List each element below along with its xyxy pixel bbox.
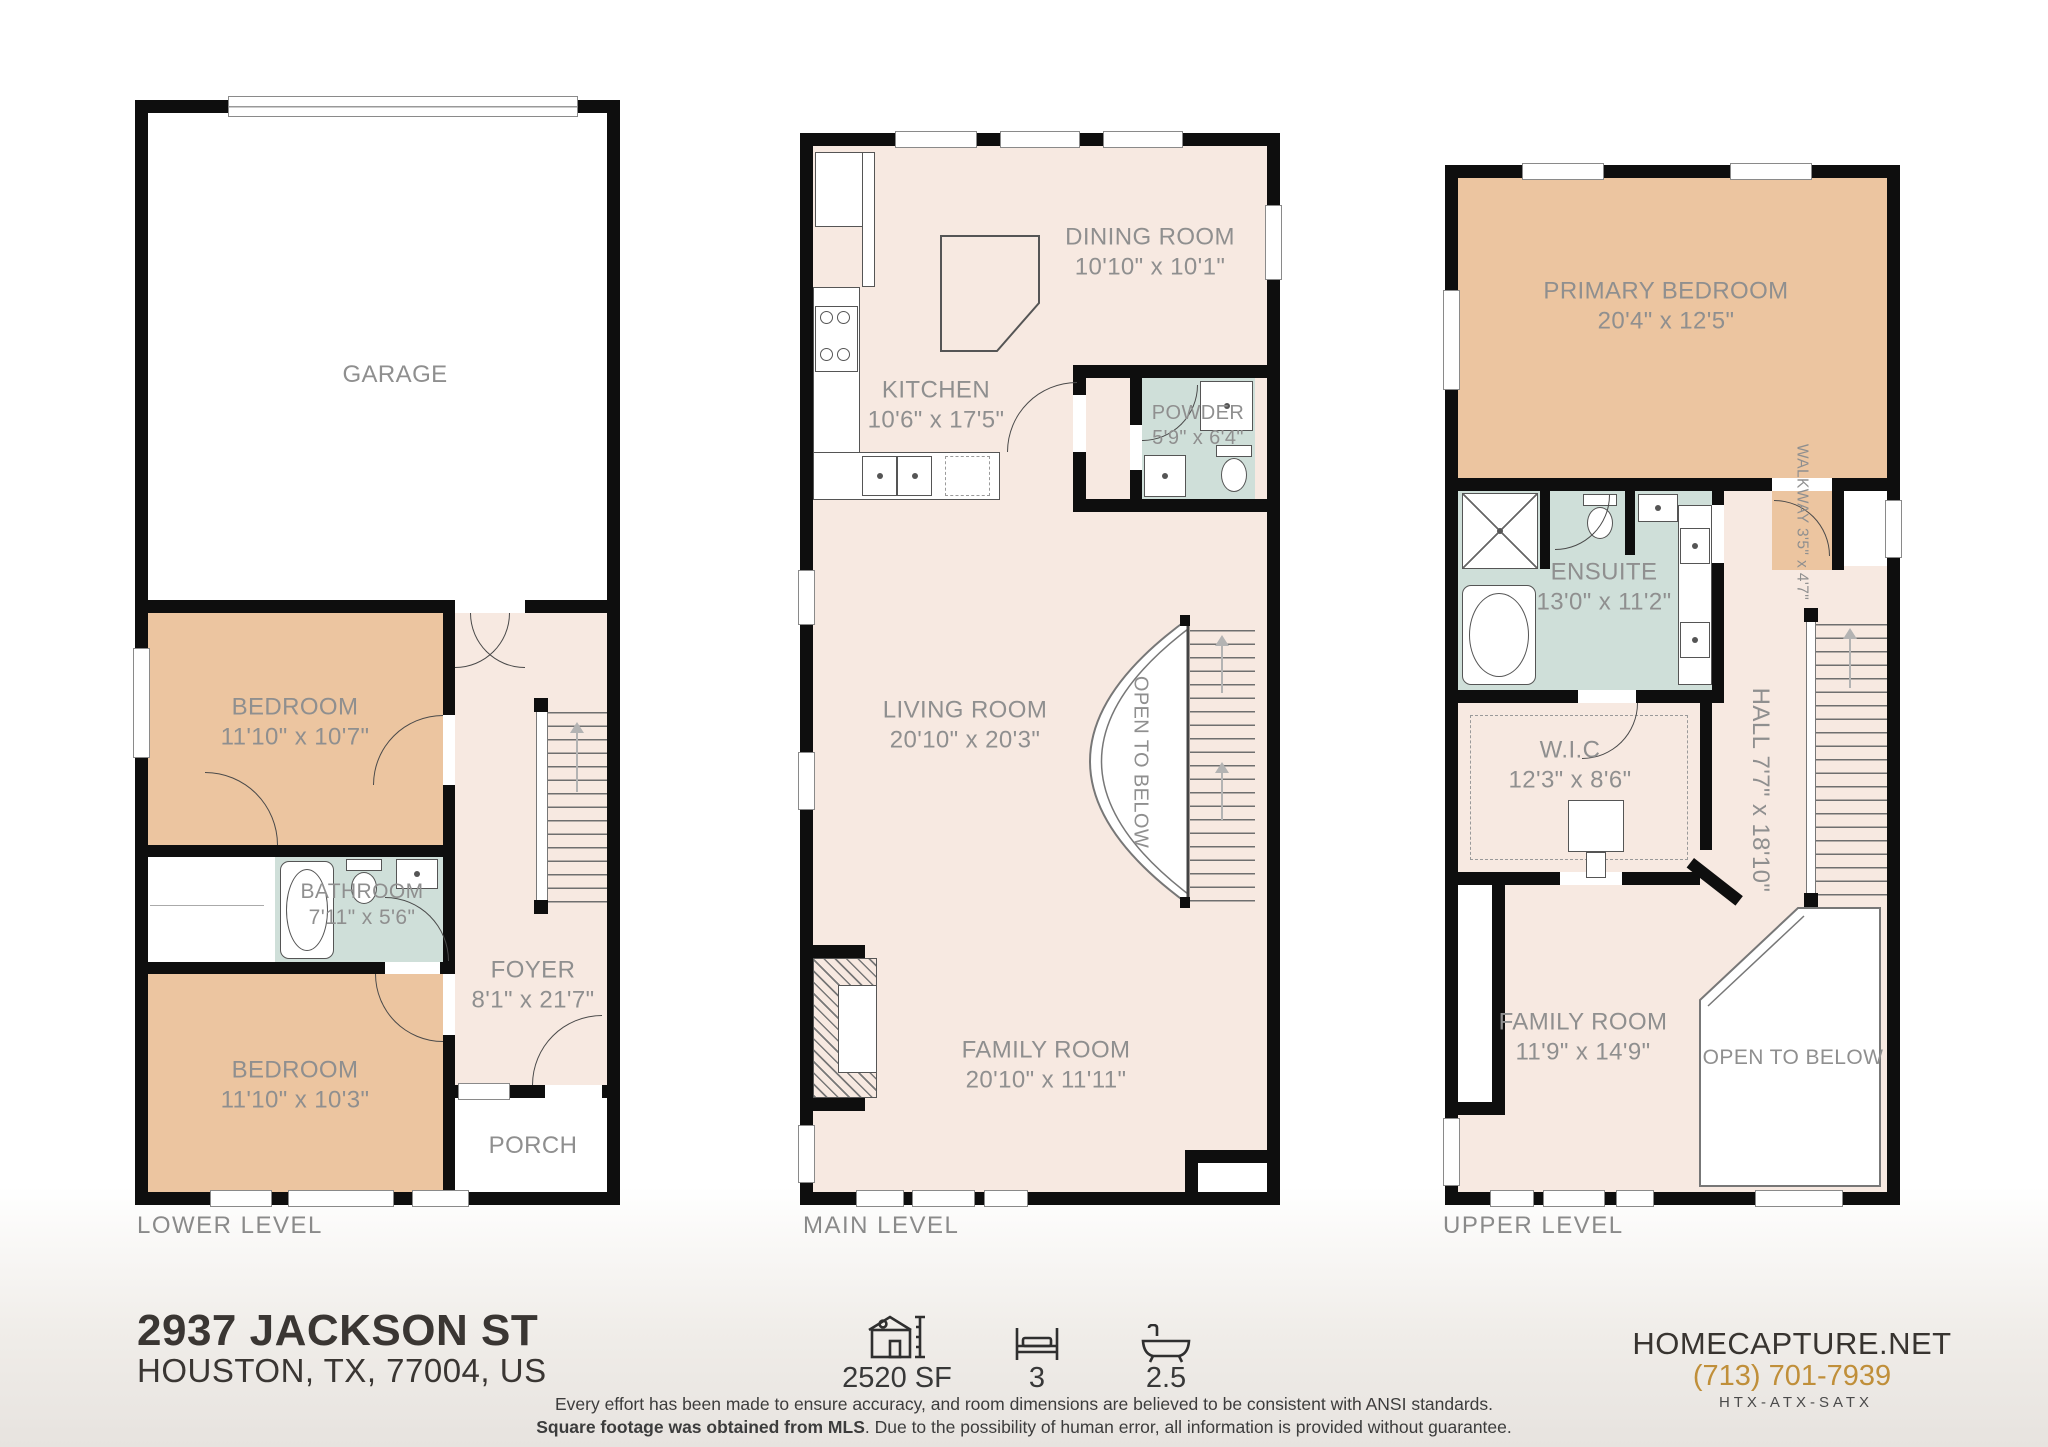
- room-name: BATHROOM: [301, 879, 424, 905]
- exterior-gap: [1458, 885, 1492, 1102]
- powder-sink: [1144, 455, 1186, 497]
- door-opening: [385, 962, 440, 974]
- window: [798, 1125, 815, 1183]
- window: [458, 1083, 510, 1100]
- room-dims: 8'1" x 21'7": [471, 985, 594, 1015]
- level-title-upper: UPPER LEVEL: [1443, 1212, 1624, 1240]
- disclaimer-line2: Square footage was obtained from MLS. Du…: [0, 1417, 2048, 1438]
- stair-newel: [1804, 608, 1818, 622]
- living-label: LIVING ROOM 20'10" x 20'3": [883, 695, 1047, 755]
- door-opening: [443, 968, 455, 1035]
- stove-burner: [820, 311, 833, 324]
- wall: [813, 1098, 865, 1111]
- walkway-label: WALKWAY 3'5" x 4'7": [1792, 444, 1811, 600]
- beds-value: 3: [1029, 1362, 1045, 1395]
- room-name: W.I.C: [1508, 735, 1631, 765]
- window: [288, 1190, 394, 1207]
- room-name: BEDROOM: [221, 692, 370, 722]
- sink-fixture: [1638, 494, 1678, 522]
- wall: [443, 600, 455, 1205]
- closet-shelf-line: [150, 905, 264, 906]
- stair-rail: [536, 700, 548, 912]
- window: [856, 1190, 904, 1207]
- sqft-house-icon: [866, 1314, 928, 1360]
- wall: [1492, 872, 1505, 1115]
- shower-fixture: [1462, 493, 1538, 569]
- window: [1730, 163, 1812, 180]
- closet: [148, 857, 266, 962]
- kitchen-island: [940, 235, 1040, 352]
- brand-name: HOMECAPTURE.NET: [1632, 1326, 1951, 1362]
- room-dims: 12'3" x 8'6": [1508, 765, 1631, 795]
- wall: [1267, 133, 1280, 1205]
- sqft-value: 2520 SF: [842, 1362, 952, 1395]
- foyer-label: FOYER 8'1" x 21'7": [471, 955, 594, 1015]
- room-dims: 7'11" x 5'6": [301, 905, 424, 931]
- bed-icon: [1013, 1326, 1061, 1362]
- door-opening: [443, 715, 455, 785]
- room-name: BEDROOM: [221, 1055, 370, 1085]
- room-dims: 11'10" x 10'7": [221, 722, 370, 752]
- room-name: ENSUITE: [1536, 557, 1671, 587]
- dishwasher-fixture: [945, 456, 990, 496]
- stair-up-arrow: [1843, 628, 1857, 688]
- garage-label: GARAGE: [342, 360, 447, 390]
- address-line1: 2937 JACKSON ST: [137, 1306, 538, 1356]
- room-name: OPEN TO BELOW: [1703, 1045, 1884, 1071]
- window: [412, 1190, 469, 1207]
- room-garage: [148, 113, 607, 600]
- window: [1103, 131, 1183, 148]
- door-opening: [455, 600, 525, 613]
- bathroom-label: BATHROOM 7'11" x 5'6": [301, 879, 424, 931]
- fireplace-firebox: [838, 985, 877, 1073]
- window: [798, 752, 815, 810]
- stove-burner: [837, 311, 850, 324]
- kitchen-sink: [862, 456, 897, 496]
- vanity-sink: [1680, 528, 1710, 564]
- room-dims: 11'10" x 10'3": [221, 1085, 370, 1115]
- room-name: OPEN TO BELOW: [1128, 676, 1153, 848]
- wall: [800, 133, 813, 1205]
- window: [984, 1190, 1028, 1207]
- open-below-label: OPEN TO BELOW: [1128, 676, 1153, 848]
- room-name: PORCH: [489, 1131, 578, 1161]
- room-name: DINING ROOM: [1065, 222, 1235, 252]
- room-name: LIVING ROOM: [883, 695, 1047, 725]
- room-name: PRIMARY BEDROOM: [1543, 276, 1788, 306]
- toilet-bowl: [1221, 458, 1247, 492]
- stair-newel: [534, 900, 548, 914]
- room-name: FOYER: [471, 955, 594, 985]
- disclaimer-bold: Square footage was obtained from MLS: [536, 1417, 865, 1437]
- stove-burner: [820, 348, 833, 361]
- wall: [1185, 1150, 1280, 1163]
- door-opening: [1578, 690, 1636, 703]
- stair-rail: [1806, 612, 1816, 905]
- window: [1616, 1190, 1654, 1207]
- primary-label: PRIMARY BEDROOM 20'4" x 12'5": [1543, 276, 1788, 336]
- family-upper-label: FAMILY ROOM 11'9" x 14'9": [1499, 1007, 1668, 1067]
- stove-burner: [837, 348, 850, 361]
- wall: [1445, 165, 1900, 178]
- family-main-label: FAMILY ROOM 20'10" x 11'11": [962, 1035, 1131, 1095]
- room-name: POWDER: [1152, 401, 1244, 426]
- room-dims: 13'0" x 11'2": [1536, 587, 1671, 617]
- room-name: FAMILY ROOM: [962, 1035, 1131, 1065]
- level-title-lower: LOWER LEVEL: [137, 1212, 323, 1240]
- bathtub-inner: [1469, 593, 1529, 677]
- window: [133, 648, 150, 758]
- room-dims: 20'10" x 11'11": [962, 1065, 1131, 1095]
- window: [1265, 205, 1282, 280]
- room-name: GARAGE: [342, 360, 447, 390]
- porch-label: PORCH: [489, 1131, 578, 1161]
- wic-dresser: [1568, 800, 1624, 852]
- exterior-gap: [1844, 491, 1887, 566]
- front-door-opening: [545, 1085, 602, 1098]
- ensuite-label: ENSUITE 13'0" x 11'2": [1536, 557, 1671, 617]
- hall-label: HALL 7'7" x 18'10": [1745, 688, 1775, 893]
- wall: [1445, 1102, 1505, 1115]
- stair-newel: [534, 698, 548, 712]
- door-opening: [1712, 505, 1724, 563]
- floorplan-page: GARAGE BEDROOM 11'10" x 10'7" BATHROOM 7…: [0, 0, 2048, 1447]
- stair-up-arrow: [1215, 635, 1229, 693]
- powder-label: POWDER 5'9" x 6'4": [1152, 401, 1244, 451]
- room-dims: 11'9" x 14'9": [1499, 1037, 1668, 1067]
- dining-label: DINING ROOM 10'10" x 10'1": [1065, 222, 1235, 282]
- room-dims: 10'10" x 10'1": [1065, 252, 1235, 282]
- wall: [1073, 499, 1280, 512]
- brand-tagline: HTX-ATX-SATX: [1719, 1394, 1873, 1411]
- room-dims: 5'9" x 6'4": [1152, 426, 1244, 451]
- level-title-main: MAIN LEVEL: [803, 1212, 959, 1240]
- wall: [1887, 165, 1900, 1205]
- window: [1443, 1118, 1460, 1186]
- wic-dresser-stub: [1586, 852, 1606, 878]
- room-dims: 20'4" x 12'5": [1543, 306, 1788, 336]
- bath-icon: [1141, 1324, 1191, 1364]
- baths-value: 2.5: [1146, 1362, 1186, 1395]
- window: [798, 570, 815, 625]
- wall: [135, 600, 620, 613]
- address-line2: HOUSTON, TX, 77004, US: [137, 1352, 547, 1390]
- kitchen-sink: [897, 456, 932, 496]
- stair-up-arrow: [570, 722, 584, 792]
- window: [1490, 1190, 1534, 1207]
- stair-up-arrow: [1215, 762, 1229, 820]
- window: [1885, 500, 1902, 558]
- door-opening: [1130, 425, 1142, 470]
- wall: [1700, 690, 1712, 850]
- window: [210, 1190, 272, 1207]
- window: [1000, 131, 1080, 148]
- wall: [1073, 365, 1280, 378]
- room-name: FAMILY ROOM: [1499, 1007, 1668, 1037]
- window: [1522, 163, 1604, 180]
- disclaimer-rest: . Due to the possibility of human error,…: [865, 1417, 1512, 1437]
- wall: [1832, 478, 1844, 570]
- bedroom1-label: BEDROOM 11'10" x 10'7": [221, 692, 370, 752]
- wall: [135, 845, 455, 857]
- wall: [607, 100, 620, 1205]
- window: [1443, 290, 1460, 390]
- garage-door: [228, 96, 578, 117]
- wall: [813, 945, 865, 958]
- wic-label: W.I.C 12'3" x 8'6": [1508, 735, 1631, 795]
- vanity-sink: [1680, 622, 1710, 658]
- window: [1543, 1190, 1605, 1207]
- room-name: KITCHEN: [868, 375, 1005, 405]
- kitchen-label: KITCHEN 10'6" x 17'5": [868, 375, 1005, 435]
- window: [912, 1190, 975, 1207]
- room-dims: 10'6" x 17'5": [868, 405, 1005, 435]
- room-dims: 20'10" x 20'3": [883, 725, 1047, 755]
- wall: [1625, 491, 1635, 555]
- cabinet-fixture: [862, 152, 875, 287]
- toilet-tank: [346, 859, 382, 871]
- bedroom2-label: BEDROOM 11'10" x 10'3": [221, 1055, 370, 1115]
- brand-phone: (713) 701-7939: [1693, 1360, 1891, 1393]
- open-below-upper-label: OPEN TO BELOW: [1703, 1045, 1884, 1071]
- window: [895, 131, 977, 148]
